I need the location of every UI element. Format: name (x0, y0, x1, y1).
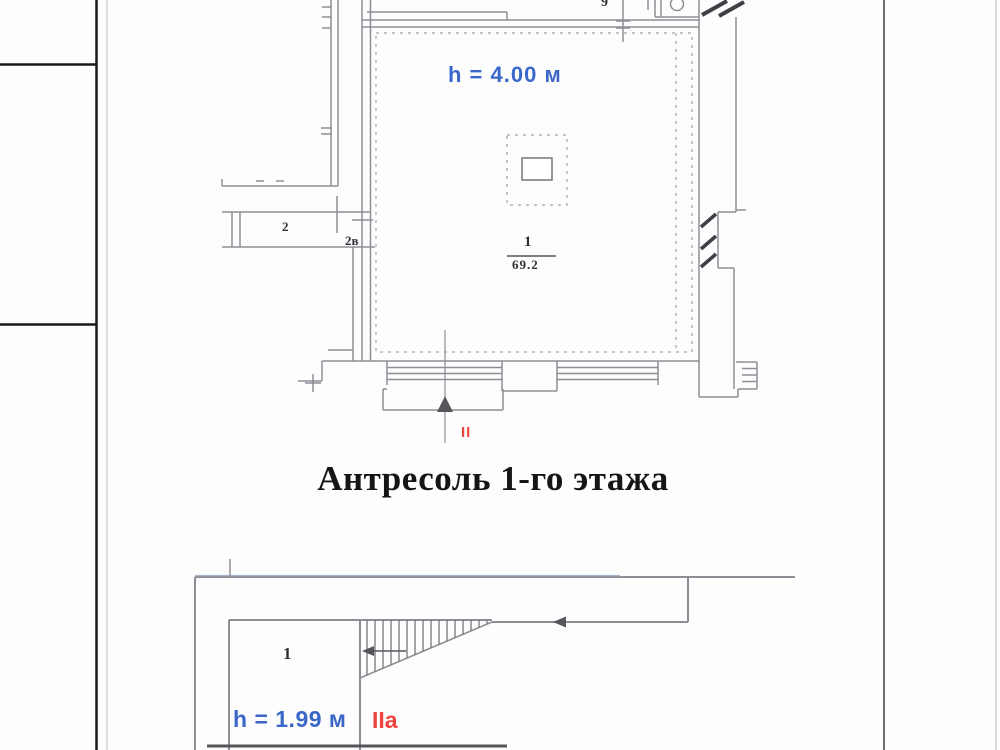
landing-arrowhead (553, 617, 566, 628)
bottom-wall-details (298, 361, 757, 410)
main-room-walls (322, 0, 746, 389)
upper-room-area: 69.2 (512, 257, 539, 273)
corridor-room-2 (222, 196, 375, 361)
upper-height-label: h = 4.00 м (448, 62, 562, 88)
staircase (360, 620, 492, 678)
floor-plan-linework (0, 0, 1000, 750)
upper-axis-mark: II (461, 424, 471, 441)
wall-hatching (701, 214, 716, 267)
section-centerline (437, 330, 453, 443)
upper-corner-mark: 9 (601, 0, 608, 11)
lower-height-label: h = 1.99 м (233, 706, 346, 733)
room-2-number: 2 (282, 219, 289, 235)
lower-axis-mark: IIа (372, 707, 398, 734)
plan-title: Антресоль 1-го этажа (317, 459, 669, 499)
upper-left-walls (222, 0, 338, 186)
upper-room-number: 1 (524, 234, 532, 251)
top-dimension-line (616, 0, 630, 42)
corner-hatching (702, 1, 744, 16)
room-2v-label: 2в (345, 233, 359, 249)
left-table-edge (0, 0, 97, 750)
lower-room-number: 1 (283, 644, 292, 664)
top-shaft-box (648, 0, 699, 17)
column-symbol (507, 135, 567, 205)
scanned-floorplan-page: 9 h = 4.00 м 2 2в 1 69.2 II Антресоль 1-… (0, 0, 1000, 750)
